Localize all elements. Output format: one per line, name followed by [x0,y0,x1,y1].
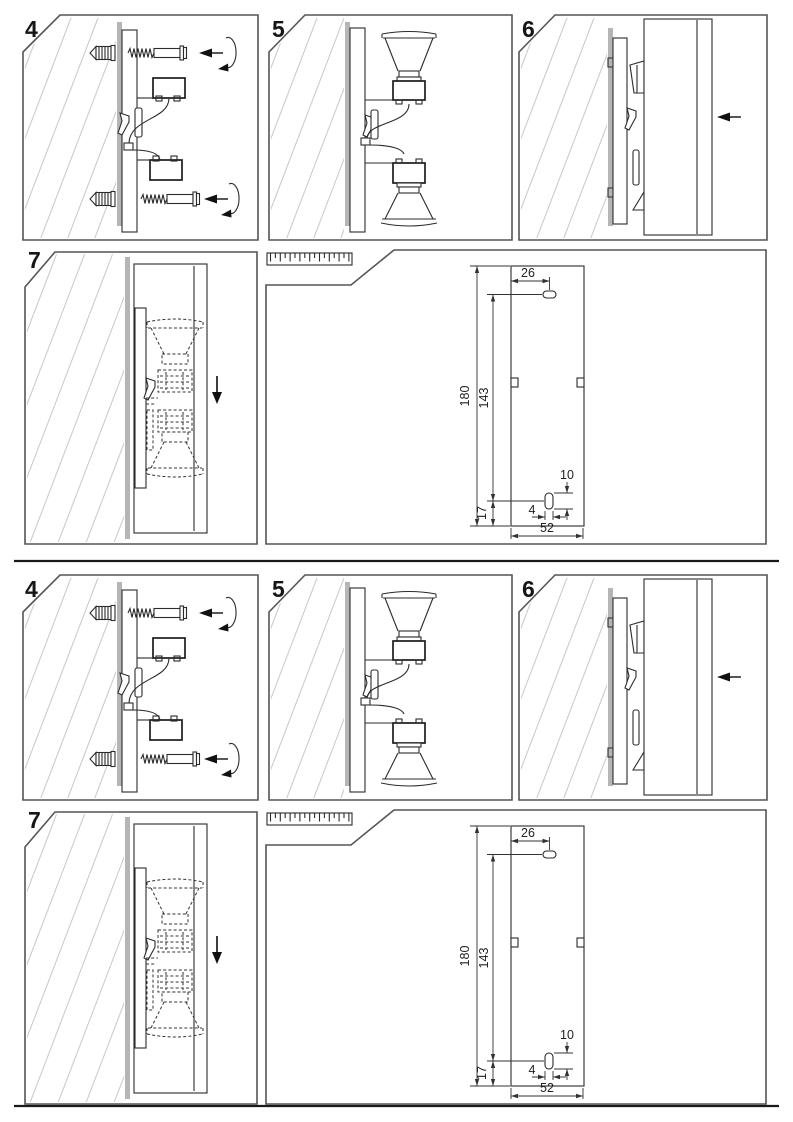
page-2 [0,575,767,1108]
page-1 [0,15,767,548]
manual-drawing: 4 [0,0,793,1122]
installation-manual-sheet: 4 [0,0,793,1122]
